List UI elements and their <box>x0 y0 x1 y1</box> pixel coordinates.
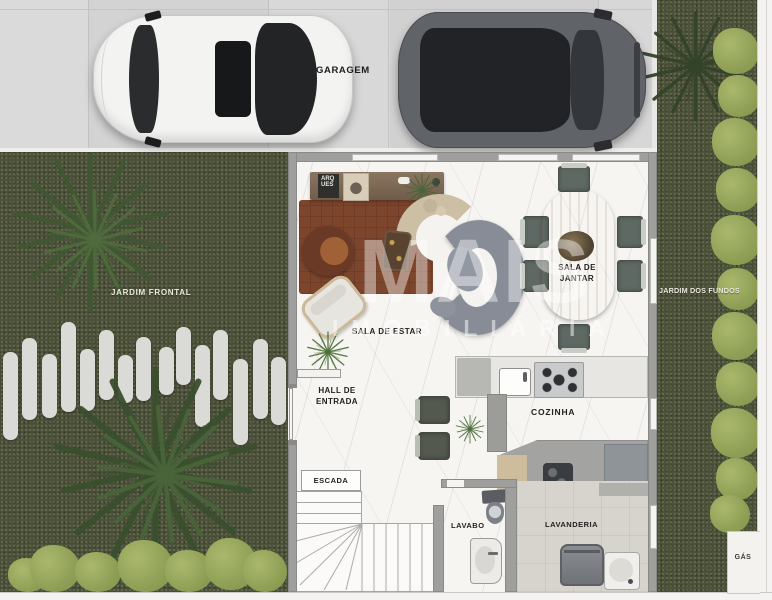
dining-chair <box>617 260 643 292</box>
kitchen-chair <box>418 432 450 460</box>
stepping-stone <box>22 338 37 420</box>
gas-area: GÁS <box>727 531 760 594</box>
shrub <box>710 495 750 533</box>
shrub <box>712 312 760 360</box>
back-garden-label: JARDIM DOS FUNDOS <box>659 286 740 295</box>
stairs-box: ESCADA <box>301 470 361 491</box>
laundry-counter <box>599 483 648 496</box>
paving-joint <box>388 0 389 148</box>
dining-chair <box>558 166 590 192</box>
front-door <box>289 388 293 440</box>
wall-art-frame <box>343 173 369 201</box>
shrub <box>716 362 760 406</box>
white-car-hood-line <box>101 33 128 125</box>
shrub <box>711 408 761 458</box>
dining-chair <box>558 324 590 350</box>
laundry-door <box>650 505 657 549</box>
stairs-label: ESCADA <box>302 471 360 490</box>
window <box>572 154 640 161</box>
stepping-stone <box>3 352 18 440</box>
stepping-stone <box>271 357 286 425</box>
living-room-label: SALA DE ESTAR <box>352 327 422 336</box>
laundry-tub <box>604 552 640 590</box>
kitchen-chair <box>418 396 450 424</box>
kitchen-label: COZINHA <box>531 407 575 417</box>
paving-joint <box>88 0 89 148</box>
lavabo-basin <box>475 546 495 574</box>
stair-treads-lower <box>294 523 434 592</box>
white-car-windshield <box>129 25 159 133</box>
suv-grille <box>634 42 640 118</box>
kitchen-sink <box>499 368 531 396</box>
entry-console <box>297 369 341 378</box>
garage-label: GARAGEM <box>316 65 370 76</box>
white-car-rear-window <box>255 23 317 135</box>
houseplant <box>306 330 350 374</box>
washing-machine <box>560 544 604 586</box>
page-margin-line <box>766 0 767 600</box>
gas-label: GÁS <box>728 554 758 561</box>
houseplant <box>455 414 485 444</box>
brown-armchair <box>302 226 354 276</box>
wall-art-poster: ARQ UES <box>318 174 339 198</box>
wall-left-lower <box>288 444 297 592</box>
window <box>650 398 657 430</box>
shrub <box>713 28 759 74</box>
kitchen-island <box>487 394 507 452</box>
stair-wall <box>433 505 444 592</box>
paving-joint <box>0 9 652 10</box>
suv-roof <box>420 28 570 132</box>
wall-left-upper <box>288 152 297 386</box>
toilet-label: LAVABO <box>451 521 485 530</box>
door-jamb <box>288 440 297 444</box>
shrub <box>30 545 80 592</box>
stair-treads-upper <box>294 491 362 524</box>
shrub <box>716 168 760 212</box>
window <box>352 154 438 161</box>
front-garden-label: JARDIM FRONTAL <box>111 288 191 297</box>
bar-cart <box>381 230 412 273</box>
kitchen-cabinet <box>457 358 491 396</box>
dining-room-label: SALA DE JANTAR <box>545 262 609 284</box>
dining-chair <box>617 216 643 248</box>
shrub <box>716 458 758 500</box>
side-table <box>423 199 437 213</box>
page-margin-right <box>757 0 772 600</box>
hall-label: HALL DE ENTRADA <box>310 385 364 407</box>
window <box>650 238 657 304</box>
shrub <box>243 550 287 592</box>
white-car-sunroof <box>215 41 251 117</box>
page-margin-bottom <box>0 592 772 600</box>
side-table <box>436 206 446 216</box>
suv-car <box>398 12 646 148</box>
laundry-label: LAVANDERIA <box>545 520 598 529</box>
lavabo-wall-right <box>505 487 517 592</box>
suv-windshield <box>570 30 604 130</box>
shrub <box>718 75 760 117</box>
shrub <box>712 118 760 166</box>
lavabo-faucet <box>488 552 498 555</box>
window <box>498 154 558 161</box>
floor-plan: JARDIM FRONTAL JARDIM DOS FUNDOS GARAGEM… <box>0 0 772 600</box>
cooktop <box>534 362 584 398</box>
shrub <box>711 215 761 265</box>
shrub <box>75 552 121 592</box>
toilet-bowl <box>486 502 504 524</box>
white-car <box>93 15 353 143</box>
lavabo-door <box>447 480 464 487</box>
